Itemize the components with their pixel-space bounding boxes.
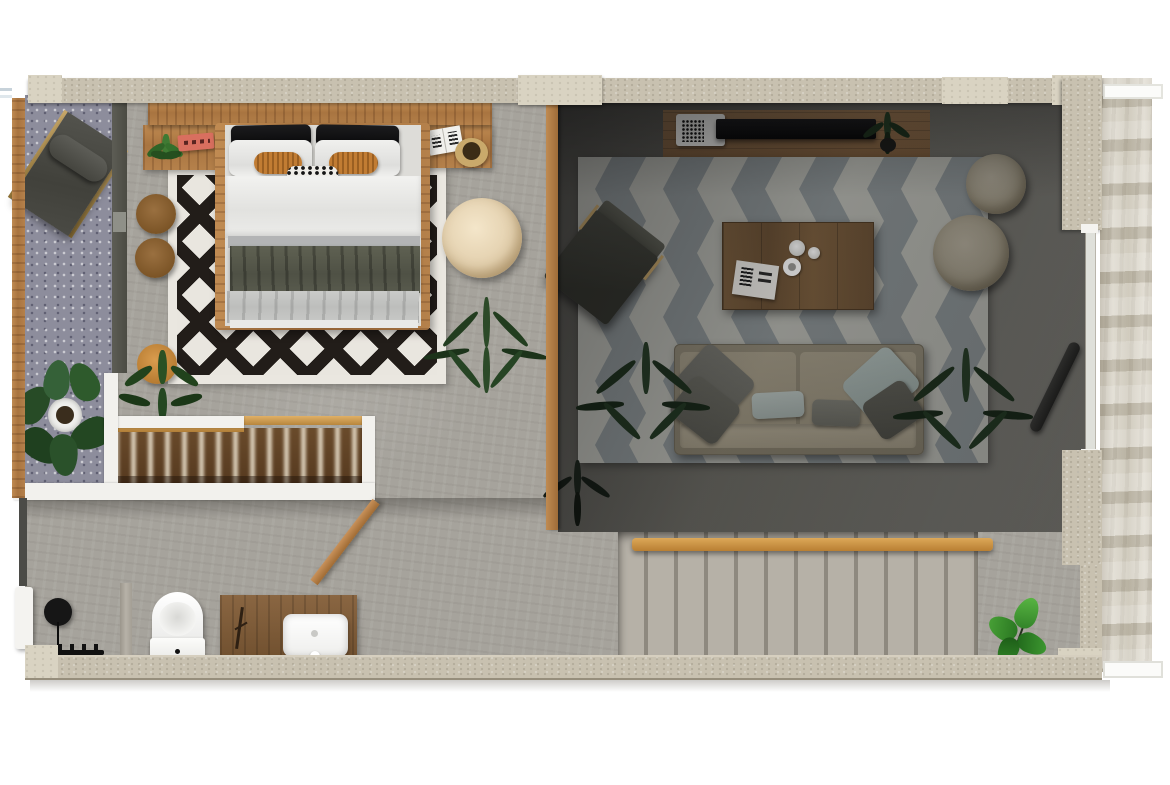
bedroom-palm-plant	[437, 297, 537, 393]
left-edge-wood	[12, 98, 25, 498]
glass-door-cap	[1081, 224, 1098, 233]
closet-interior	[118, 428, 362, 486]
vanity-counter	[220, 595, 357, 663]
coral-box	[177, 132, 214, 151]
sheet-edge	[230, 320, 418, 328]
tv	[716, 119, 876, 139]
right-pillar-top	[1062, 78, 1102, 230]
bowl	[789, 240, 805, 256]
wall-block	[25, 645, 58, 678]
closet-wall-bottom	[14, 483, 375, 500]
bottom-wall	[25, 655, 1102, 680]
balcony-plant	[14, 360, 114, 480]
staircase	[618, 532, 978, 662]
closet-rail-right	[244, 416, 362, 425]
headboard-shelf	[148, 103, 492, 125]
sink	[283, 614, 348, 657]
floor-pouf	[933, 215, 1009, 291]
nook-wall	[104, 373, 118, 487]
exterior-wall-strip	[1100, 78, 1152, 672]
wall-block	[28, 75, 62, 103]
exterior-line	[0, 88, 12, 91]
hall-shadow	[25, 498, 546, 520]
balcony-partition-wall	[112, 95, 127, 373]
floor-pouf	[966, 154, 1026, 214]
divider-wall	[546, 100, 558, 530]
exterior-line	[0, 95, 12, 98]
laptop-keyboard	[682, 120, 704, 142]
leaf	[41, 358, 72, 401]
wall-block	[518, 75, 602, 105]
round-side-table	[135, 238, 175, 278]
exterior-ledge-top	[1103, 84, 1163, 99]
decor-bowl	[455, 138, 488, 167]
glass-door	[1085, 228, 1096, 456]
gray-sheet	[227, 291, 419, 323]
dark-blanket	[230, 246, 420, 293]
sliding-door-gap	[113, 212, 126, 232]
coffee-table	[722, 222, 874, 310]
bathroom-partition	[120, 583, 132, 662]
exterior-ledge-bottom	[1103, 661, 1163, 678]
rattan-pouf	[442, 198, 522, 278]
plant-soil	[56, 406, 74, 424]
white-duvet	[225, 176, 421, 238]
floor-plan	[0, 0, 1170, 785]
closet-wall-top	[104, 416, 244, 428]
round-side-table	[136, 194, 176, 234]
wall-block	[942, 77, 1008, 104]
light-blue-pillow	[751, 391, 804, 420]
gray-pillow	[812, 399, 861, 427]
entry-wall	[19, 498, 27, 586]
sofa-plant-right	[910, 348, 1020, 456]
toilet	[150, 590, 205, 663]
bowl	[808, 247, 820, 259]
stairs-plant	[988, 595, 1052, 663]
right-pillar-bottom	[1062, 450, 1102, 565]
door-panel	[15, 587, 33, 649]
sofa	[674, 344, 922, 453]
fern-plant	[122, 350, 202, 422]
plan-drop-shadow	[30, 680, 1110, 692]
console-plant	[862, 110, 914, 156]
sofa-plant-left	[592, 342, 698, 448]
bowl	[783, 258, 801, 276]
double-bed	[215, 123, 430, 330]
book	[732, 260, 779, 300]
handrail	[632, 538, 993, 551]
